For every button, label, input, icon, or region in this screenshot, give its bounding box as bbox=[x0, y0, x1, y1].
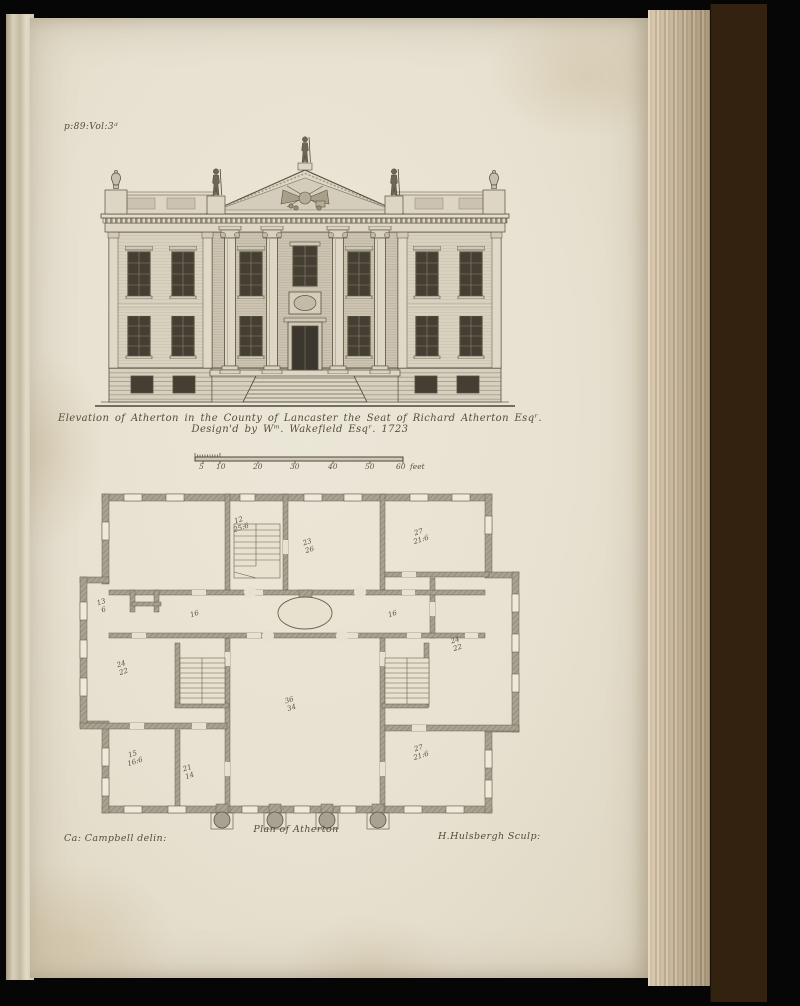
stair-left bbox=[180, 658, 225, 704]
urn-icon bbox=[490, 170, 499, 188]
draughtsman-credit: Ca: Campbell delin: bbox=[64, 833, 167, 844]
oval-vestibule bbox=[278, 597, 332, 629]
stair-right bbox=[385, 658, 429, 704]
scale-unit-label: feet bbox=[410, 462, 425, 471]
scale-tick-label: 50 bbox=[365, 462, 375, 471]
engraver-credit: H.Hulsbergh Sculp: bbox=[438, 831, 541, 842]
elevation-engraving bbox=[95, 136, 515, 412]
plan-engraving: 1225:6 2326 2721:6 136 16 16 2422 3634 2… bbox=[72, 482, 542, 834]
statue-icon bbox=[302, 137, 311, 162]
left-wing-wall bbox=[109, 232, 212, 368]
scale-tick-label: 30 bbox=[290, 462, 300, 471]
scale-tick-label: 60 bbox=[396, 462, 406, 471]
urn-icon bbox=[112, 170, 121, 188]
scale-bar: 5 10 20 30 40 50 60 feet bbox=[186, 450, 442, 478]
plan-windows bbox=[80, 494, 519, 813]
scale-tick-label: 5 bbox=[199, 462, 204, 471]
right-wing-wall bbox=[398, 232, 501, 368]
elevation-drawing bbox=[95, 136, 515, 412]
photographed-book-page: p:89:Vol:3ᵈ bbox=[0, 0, 800, 1006]
plan-drawing bbox=[72, 482, 542, 834]
scale-tick-label: 40 bbox=[328, 462, 338, 471]
scale-tick-label: 10 bbox=[216, 462, 226, 471]
scale-tick-label: 20 bbox=[253, 462, 263, 471]
elevation-caption: Elevation of Atherton in the County of L… bbox=[58, 413, 542, 435]
page-reference: p:89:Vol:3ᵈ bbox=[64, 122, 118, 132]
entablature bbox=[101, 214, 509, 232]
pediment bbox=[206, 170, 404, 214]
statue-icon bbox=[213, 169, 222, 195]
plan-caption: Plan of Atherton bbox=[196, 824, 396, 835]
book-fore-edge-pages bbox=[648, 10, 710, 986]
statue-icon bbox=[391, 169, 400, 195]
book-leather-cover bbox=[710, 4, 767, 1002]
plan-walls bbox=[80, 494, 519, 813]
